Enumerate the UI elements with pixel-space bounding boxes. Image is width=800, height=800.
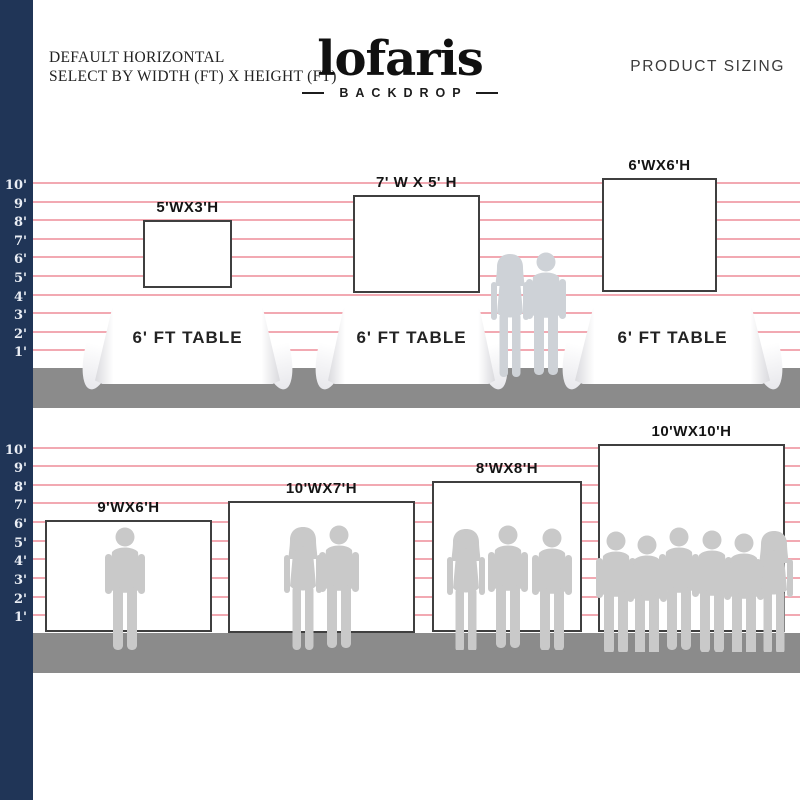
brand-subtitle: BACKDROP [280,86,520,100]
ruler-foot-label: 6' [0,517,27,533]
ruler-foot-label: 10' [0,178,27,194]
people-silhouette-trio [444,524,574,650]
backdrop-frame [353,195,480,293]
foot-ruler-bar [0,0,33,800]
product-sizing-diagram: DEFAULT HORIZONTAL SELECT BY WIDTH (FT) … [0,0,800,800]
ruler-foot-label: 9' [0,197,27,213]
backdrop-size-label: 8'WX8'H [432,459,582,479]
banquet-table: 6' FT TABLE [328,296,495,384]
ruler-foot-label: 3' [0,573,27,589]
people-silhouette-group-of-six [594,526,796,652]
ruler-foot-label: 1' [0,610,27,626]
brand-logo: lofaris BACKDROP [280,34,520,100]
backdrop-6x6: 6'WX6'H [602,156,717,292]
ruler-foot-label: 6' [0,252,27,268]
brand-name: lofaris [280,34,520,84]
ruler-foot-label: 4' [0,554,27,570]
ruler-foot-label: 5' [0,536,27,552]
ruler-foot-label: 3' [0,308,27,324]
ruler-foot-label: 2' [0,327,27,343]
backdrop-size-label: 5'WX3'H [143,198,232,218]
dash-left [302,92,324,94]
ruler-foot-label: 1' [0,345,27,361]
brand-subtitle-text: BACKDROP [332,86,467,100]
backdrop-5x3: 5'WX3'H [143,198,232,288]
ruler-foot-label: 10' [0,443,27,459]
backdrop-frame [602,178,717,292]
backdrop-frame [143,220,232,288]
backdrop-size-label: 6'WX6'H [602,156,717,176]
backdrop-size-label: 10'WX10'H [598,422,785,442]
people-silhouette-single-man [103,526,147,652]
backdrop-7x5: 7' W X 5' H [353,173,480,293]
banquet-table: 6' FT TABLE [95,296,280,384]
backdrop-size-label: 7' W X 5' H [353,173,480,193]
backdrop-size-label: 10'WX7'H [228,479,415,499]
banquet-table: 6' FT TABLE [575,296,770,384]
table-size-label: 6' FT TABLE [95,328,280,348]
people-silhouette-couple [281,524,361,650]
ruler-foot-label: 8' [0,480,27,496]
backdrop-size-label: 9'WX6'H [45,498,212,518]
table-size-label: 6' FT TABLE [328,328,495,348]
dash-right [476,92,498,94]
page-title: PRODUCT SIZING [630,58,785,76]
ruler-foot-label: 2' [0,592,27,608]
table-size-label: 6' FT TABLE [575,328,770,348]
people-silhouette-couple [488,251,568,377]
ruler-foot-label: 9' [0,461,27,477]
ruler-foot-label: 7' [0,234,27,250]
ruler-foot-label: 7' [0,498,27,514]
ruler-foot-label: 8' [0,215,27,231]
ruler-foot-label: 4' [0,290,27,306]
ruler-foot-label: 5' [0,271,27,287]
